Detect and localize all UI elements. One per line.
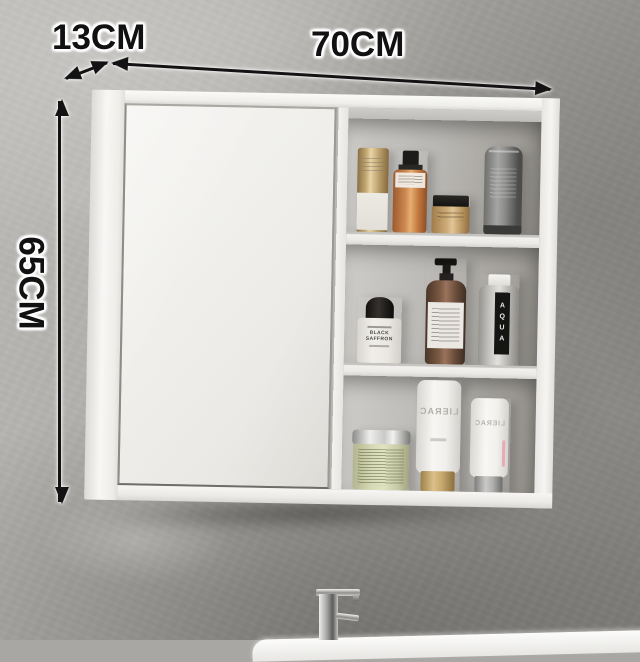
white-tube-small: LIERAC: [467, 398, 511, 493]
orange-spray-bottle: [392, 150, 428, 233]
tan-cream-jar: [431, 195, 470, 234]
gray-cosmetic-tube: [483, 146, 523, 235]
water-bottle: AQUA: [478, 274, 520, 366]
label-text-lines: [490, 168, 517, 198]
lierac-label-mirrored: LIERAC: [417, 406, 461, 417]
gold-cap: [420, 471, 454, 492]
spray-nozzle: [403, 151, 419, 166]
height-dimension-arrow: [58, 101, 61, 502]
label-text-lines: [438, 212, 464, 220]
height-dimension-label: 65CM: [11, 236, 51, 329]
label-text-lines: [431, 308, 460, 343]
mirror-door: [117, 103, 336, 489]
faucet-aerator: [353, 595, 359, 601]
mirror-cabinet: BLACK SAFFRON AQUA: [84, 90, 560, 509]
gold-pump-bottle: [356, 148, 389, 233]
perfume-bottle: BLACK SAFFRON: [357, 297, 402, 364]
width-dimension-label: 70CM: [311, 25, 404, 65]
label-text-lines: [357, 449, 404, 486]
label-text-lines: [430, 438, 446, 441]
label-text-lines: [398, 175, 422, 184]
open-shelf-unit: BLACK SAFFRON AQUA: [341, 118, 541, 493]
faucet: [316, 587, 364, 640]
shelf-compartment-middle: BLACK SAFFRON AQUA: [344, 244, 539, 366]
aqua-label: AQUA: [494, 295, 510, 353]
shelf-compartment-top: [346, 118, 541, 235]
tube-seal: [489, 150, 519, 153]
shelf-compartment-bottom: LIERAC LIERAC: [341, 375, 536, 493]
faucet-handle: [336, 613, 360, 622]
label-text-lines: [369, 345, 389, 347]
depth-dimension-label: 13CM: [52, 18, 145, 58]
amber-pump-dispenser: [425, 258, 467, 365]
mirror-reflection: [119, 105, 334, 487]
silver-cap: [474, 476, 502, 493]
pink-accent-mark: [502, 440, 505, 466]
lierac-label-mirrored: LIERAC: [471, 420, 509, 428]
label-text-lines: [361, 158, 384, 172]
perfume-label: BLACK SAFFRON: [359, 330, 399, 343]
green-jar: [352, 430, 409, 491]
bathroom-product-photo: { "annotations": { "width_label": "70CM"…: [0, 0, 640, 640]
perfume-black-cap: [366, 297, 394, 321]
bottle-label: [356, 193, 388, 231]
white-tube-large: LIERAC: [415, 380, 461, 492]
tube-body: [416, 380, 462, 474]
